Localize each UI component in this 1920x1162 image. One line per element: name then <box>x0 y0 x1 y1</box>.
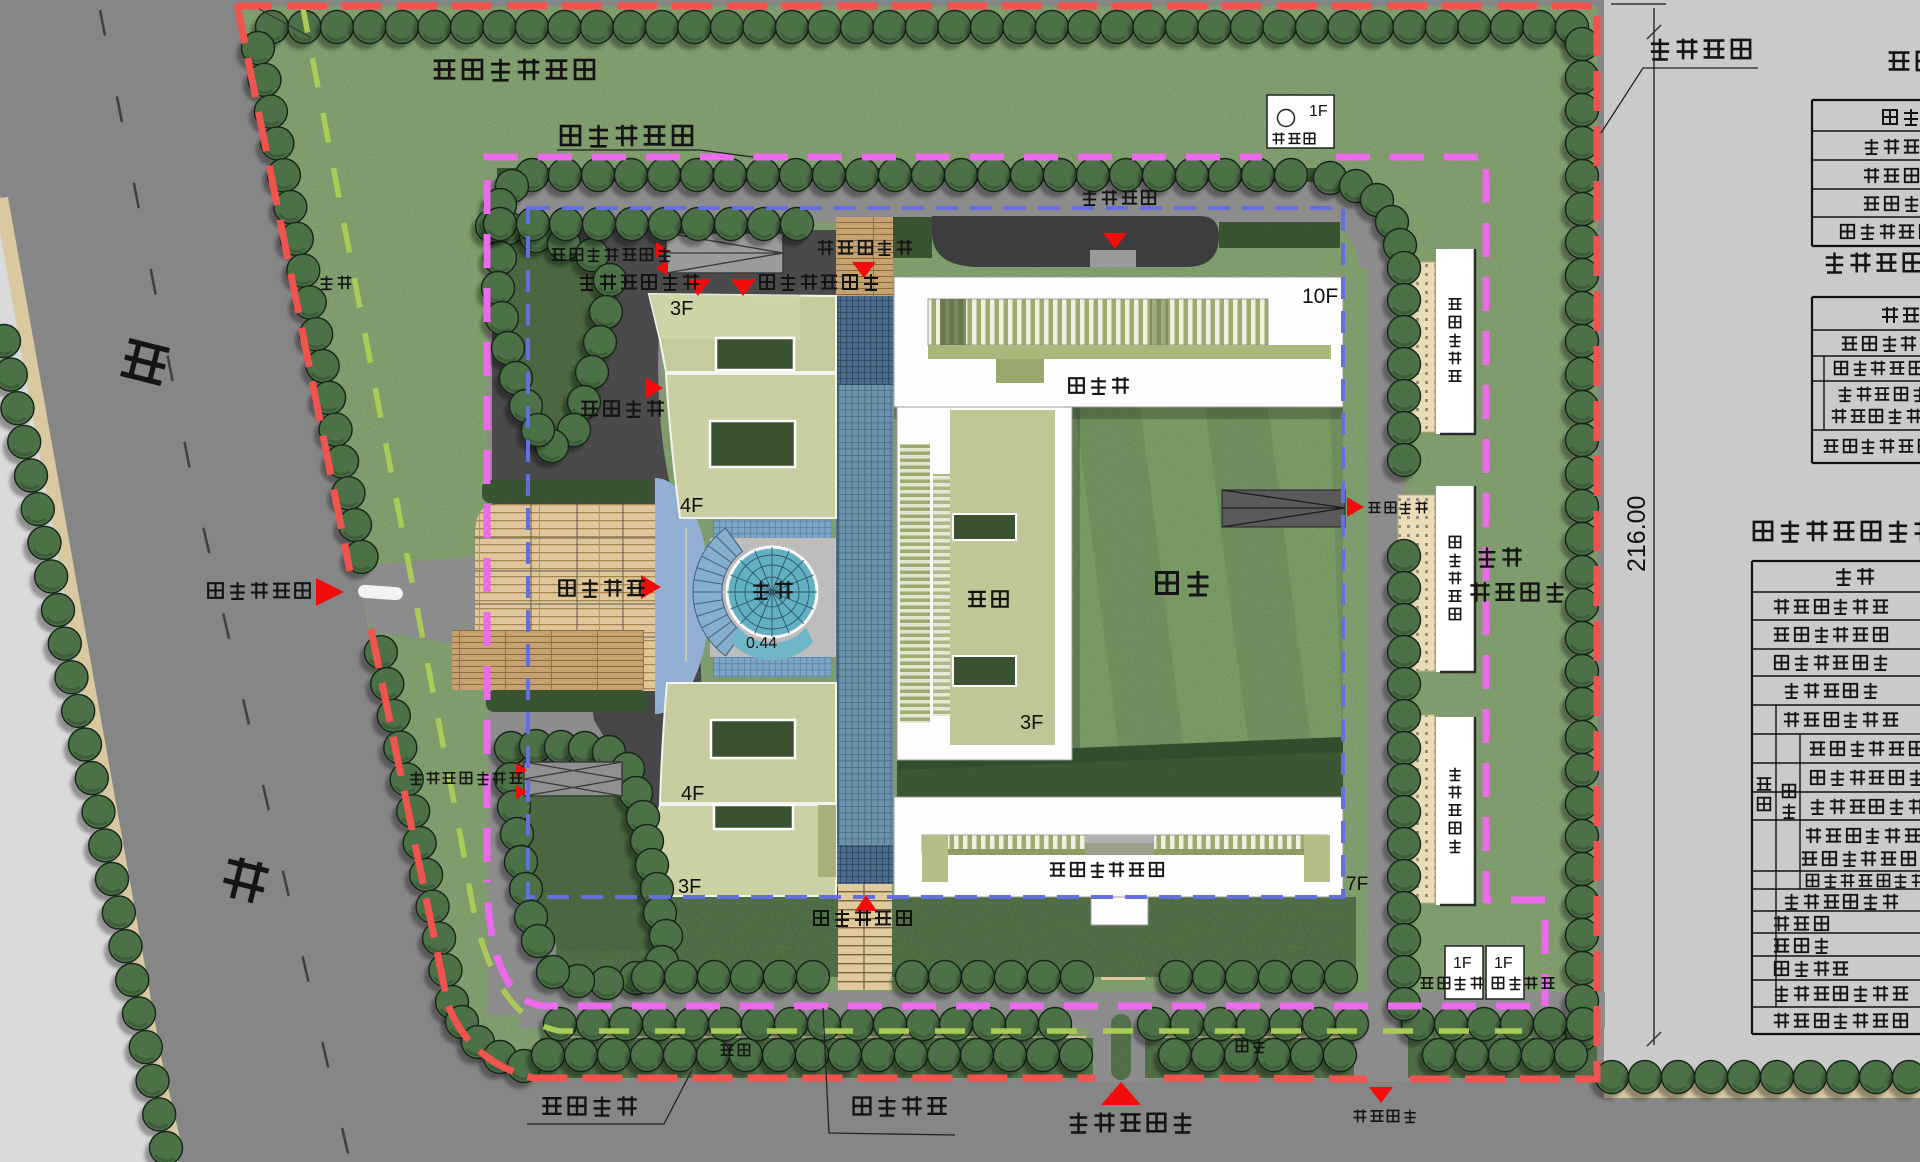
svg-text:4F: 4F <box>680 495 703 517</box>
svg-text:0.44: 0.44 <box>746 635 777 652</box>
svg-text:7F: 7F <box>1346 874 1368 895</box>
svg-text:3F: 3F <box>1020 712 1043 734</box>
svg-text:1F: 1F <box>1453 955 1472 972</box>
svg-text:1F: 1F <box>1494 955 1513 972</box>
svg-text:1F: 1F <box>1309 103 1328 120</box>
svg-text:4F: 4F <box>681 783 704 805</box>
svg-text:10F: 10F <box>1302 285 1338 308</box>
svg-text:3F: 3F <box>670 298 693 320</box>
svg-text:3F: 3F <box>678 876 701 898</box>
svg-text:216.00: 216.00 <box>1623 496 1651 572</box>
